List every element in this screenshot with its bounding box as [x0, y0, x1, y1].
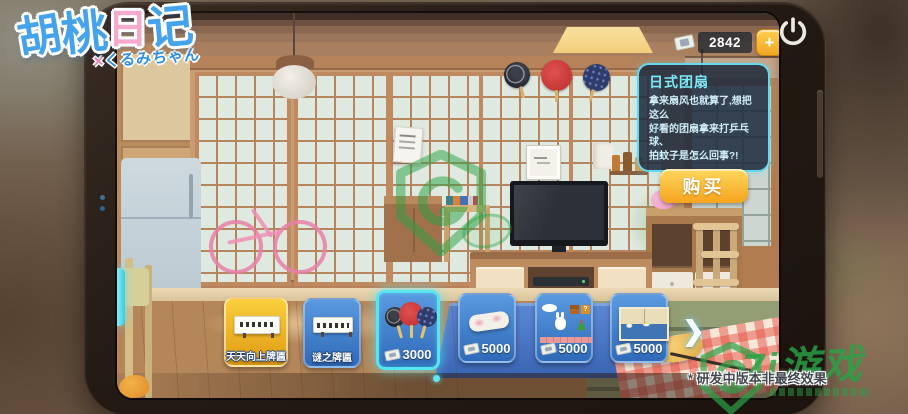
ceiling-light [553, 27, 653, 53]
buy-button[interactable]: 购买 [660, 169, 748, 203]
item-price: 5000 [482, 341, 511, 356]
baseboard [117, 288, 779, 302]
power-icon [776, 15, 810, 49]
selection-dot [433, 375, 440, 382]
bezel-sensor-dot [100, 195, 105, 200]
item-price-row: 5000 [612, 341, 666, 356]
tooltip-description: 拿来扇风也就算了,想把这么 好看的团扇拿来打乒乓球、 拍蚊子是怎么回事?! [649, 95, 758, 164]
money-icon [463, 342, 480, 355]
tablet-side-button [817, 90, 823, 178]
logo-char: 桃 [59, 7, 110, 58]
shop-item-card-wave-painting[interactable]: 5000 [610, 293, 668, 363]
watermark-url-bar [770, 388, 870, 396]
item-label: 谜之牌匾 [301, 349, 363, 364]
television [510, 181, 608, 246]
game-logo: 胡 桃 日 记 ×くるみちゃん [16, 2, 201, 77]
wall-fan-red [541, 60, 572, 91]
shop-item-card-tiantian-plaque[interactable]: 天天向上牌匾 [224, 297, 288, 367]
ceiling-beam-dark [117, 13, 779, 20]
item-price: 5000 [634, 341, 663, 356]
wall-shelf [610, 171, 648, 175]
logo-char: 胡 [14, 11, 65, 62]
item-image-plaque [305, 306, 359, 348]
item-price-row: 3000 [379, 347, 437, 362]
wall-box [593, 143, 614, 169]
bezel-sensor-dot [100, 206, 105, 211]
dev-disclaimer-text: * 研发中版本非最终效果 [688, 368, 827, 387]
item-image-plaque [226, 305, 286, 347]
shop-item-card-mystery-plaque[interactable]: 谜之牌匾 [303, 298, 361, 368]
promo-screenshot: 2842 + 日式团扇 拿来扇风也就算了,想把这么 好看的团扇拿来打乒乓球、 拍… [0, 0, 908, 414]
shop-item-card-fabric[interactable]: 5000 [458, 293, 516, 363]
currency-amount: 2842 [698, 32, 752, 53]
bicycle-wheel [273, 220, 327, 274]
item-image-platformer: ? [537, 301, 591, 343]
pendant-lamp-globe [272, 65, 316, 99]
prev-page-indicator[interactable] [117, 268, 125, 326]
item-price: 5000 [559, 341, 588, 356]
logo-char: 记 [145, 2, 195, 52]
item-image-fans [379, 299, 437, 349]
item-price-row: 5000 [537, 341, 591, 356]
jar [612, 155, 620, 171]
money-icon [540, 342, 557, 355]
item-tooltip-panel: 日式团扇 拿来扇风也就算了,想把这么 好看的团扇拿来打乒乓球、 拍蚊子是怎么回事… [637, 63, 770, 172]
currency-bar: 2842 + [675, 29, 779, 56]
money-icon [615, 342, 632, 355]
shop-item-card-japanese-fans[interactable]: 3000 [376, 290, 440, 370]
item-label: 天天向上牌匾 [222, 348, 290, 363]
bicycle-wheel [209, 220, 263, 274]
wall-picture-frame [527, 146, 560, 179]
tooltip-title: 日式团扇 [649, 72, 758, 92]
dvd-player [533, 277, 589, 286]
money-icon [384, 348, 401, 361]
shop-item-card-retro-game[interactable]: ? 5000 [535, 293, 593, 363]
money-icon [674, 34, 695, 51]
item-image-fabric [460, 301, 514, 343]
jar [623, 152, 632, 171]
floor-shadow [117, 373, 779, 398]
item-price: 3000 [403, 347, 432, 362]
item-image-wave-painting [612, 301, 666, 343]
logo-char: 日 [108, 10, 148, 50]
item-price-row: 5000 [460, 341, 514, 356]
lamp-cord [293, 13, 295, 59]
